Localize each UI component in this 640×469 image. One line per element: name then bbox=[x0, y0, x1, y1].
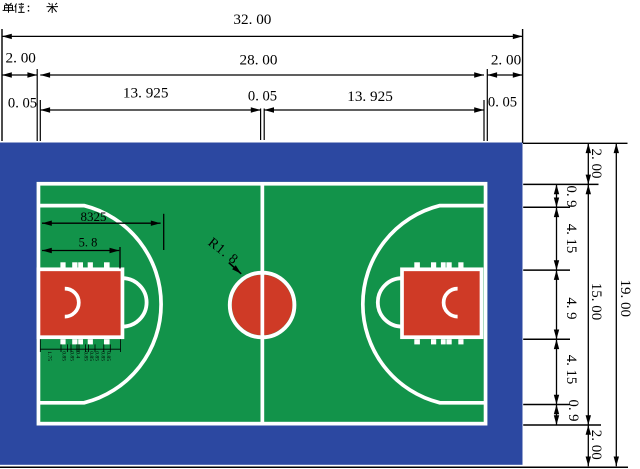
svg-text:4. 15: 4. 15 bbox=[563, 355, 579, 385]
svg-text:0.85: 0.85 bbox=[83, 351, 89, 361]
svg-text:0.4: 0.4 bbox=[75, 351, 81, 358]
svg-text:28. 00: 28. 00 bbox=[240, 52, 278, 69]
svg-text:1.75: 1.75 bbox=[46, 351, 52, 361]
svg-text:0.85: 0.85 bbox=[105, 351, 111, 361]
svg-text:0. 05: 0. 05 bbox=[488, 94, 517, 110]
svg-text:0.85: 0.85 bbox=[94, 351, 100, 361]
svg-text:4. 15: 4. 15 bbox=[563, 224, 579, 254]
svg-text:15. 00: 15. 00 bbox=[588, 283, 604, 321]
svg-text:0. 05: 0. 05 bbox=[248, 89, 277, 105]
svg-text:8325: 8325 bbox=[81, 209, 107, 224]
svg-text:0.85: 0.85 bbox=[100, 351, 106, 361]
svg-text:0. 9: 0. 9 bbox=[563, 186, 579, 208]
svg-text:2. 00: 2. 00 bbox=[588, 430, 604, 460]
svg-text:2. 00: 2. 00 bbox=[491, 52, 522, 69]
svg-text:4. 9: 4. 9 bbox=[563, 297, 579, 319]
svg-text:32. 00: 32. 00 bbox=[233, 11, 271, 28]
svg-text:19. 00: 19. 00 bbox=[617, 279, 633, 317]
svg-text:0.85: 0.85 bbox=[61, 351, 67, 361]
svg-text:13. 925: 13. 925 bbox=[347, 88, 393, 105]
svg-text:2. 00: 2. 00 bbox=[6, 49, 37, 66]
svg-text:0.85: 0.85 bbox=[69, 351, 75, 361]
svg-text:0. 9: 0. 9 bbox=[565, 400, 581, 422]
svg-text:0.85: 0.85 bbox=[88, 351, 94, 361]
svg-text:0. 05: 0. 05 bbox=[8, 96, 37, 112]
svg-text:2. 00: 2. 00 bbox=[588, 149, 604, 179]
svg-text:5. 8: 5. 8 bbox=[79, 236, 98, 250]
svg-text:13. 925: 13. 925 bbox=[123, 84, 169, 101]
